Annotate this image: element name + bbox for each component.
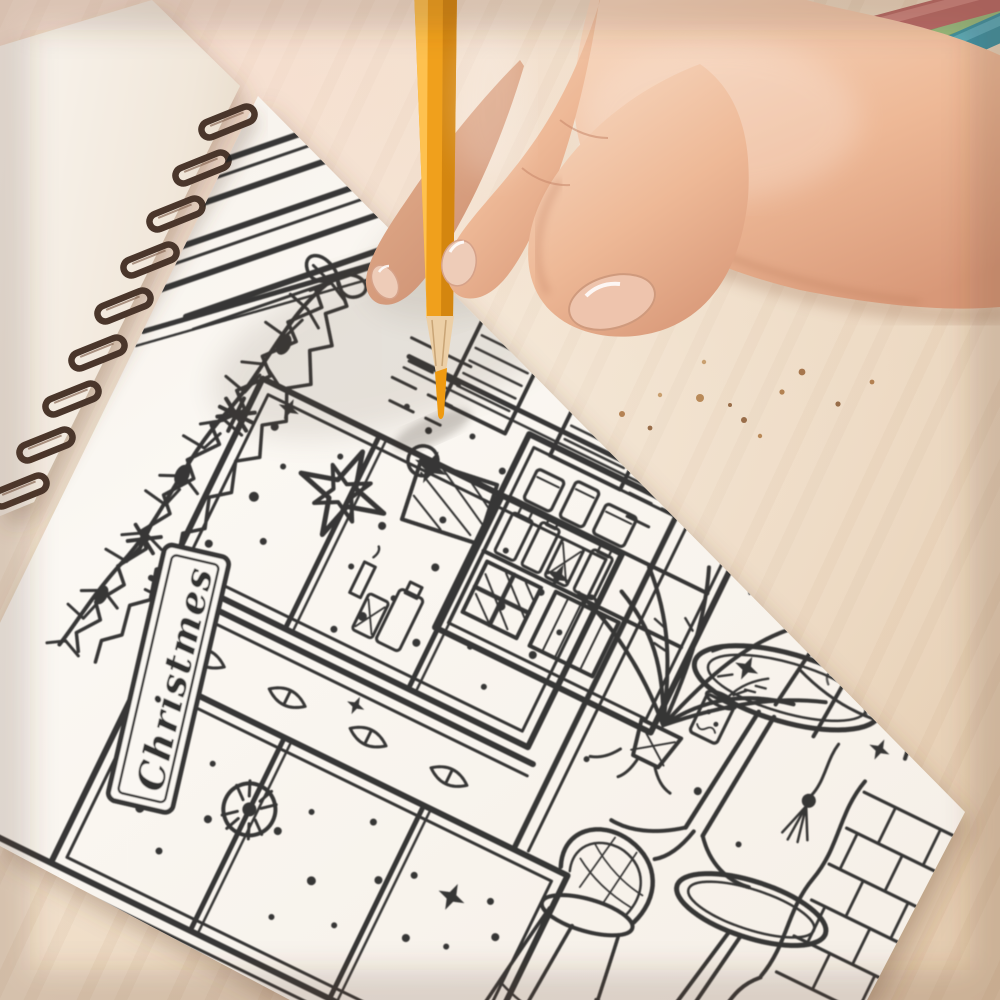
photo-scene: Christmes — [0, 0, 1000, 1000]
crumbs — [619, 360, 874, 438]
scene-canvas: Christmes — [0, 0, 1000, 1000]
